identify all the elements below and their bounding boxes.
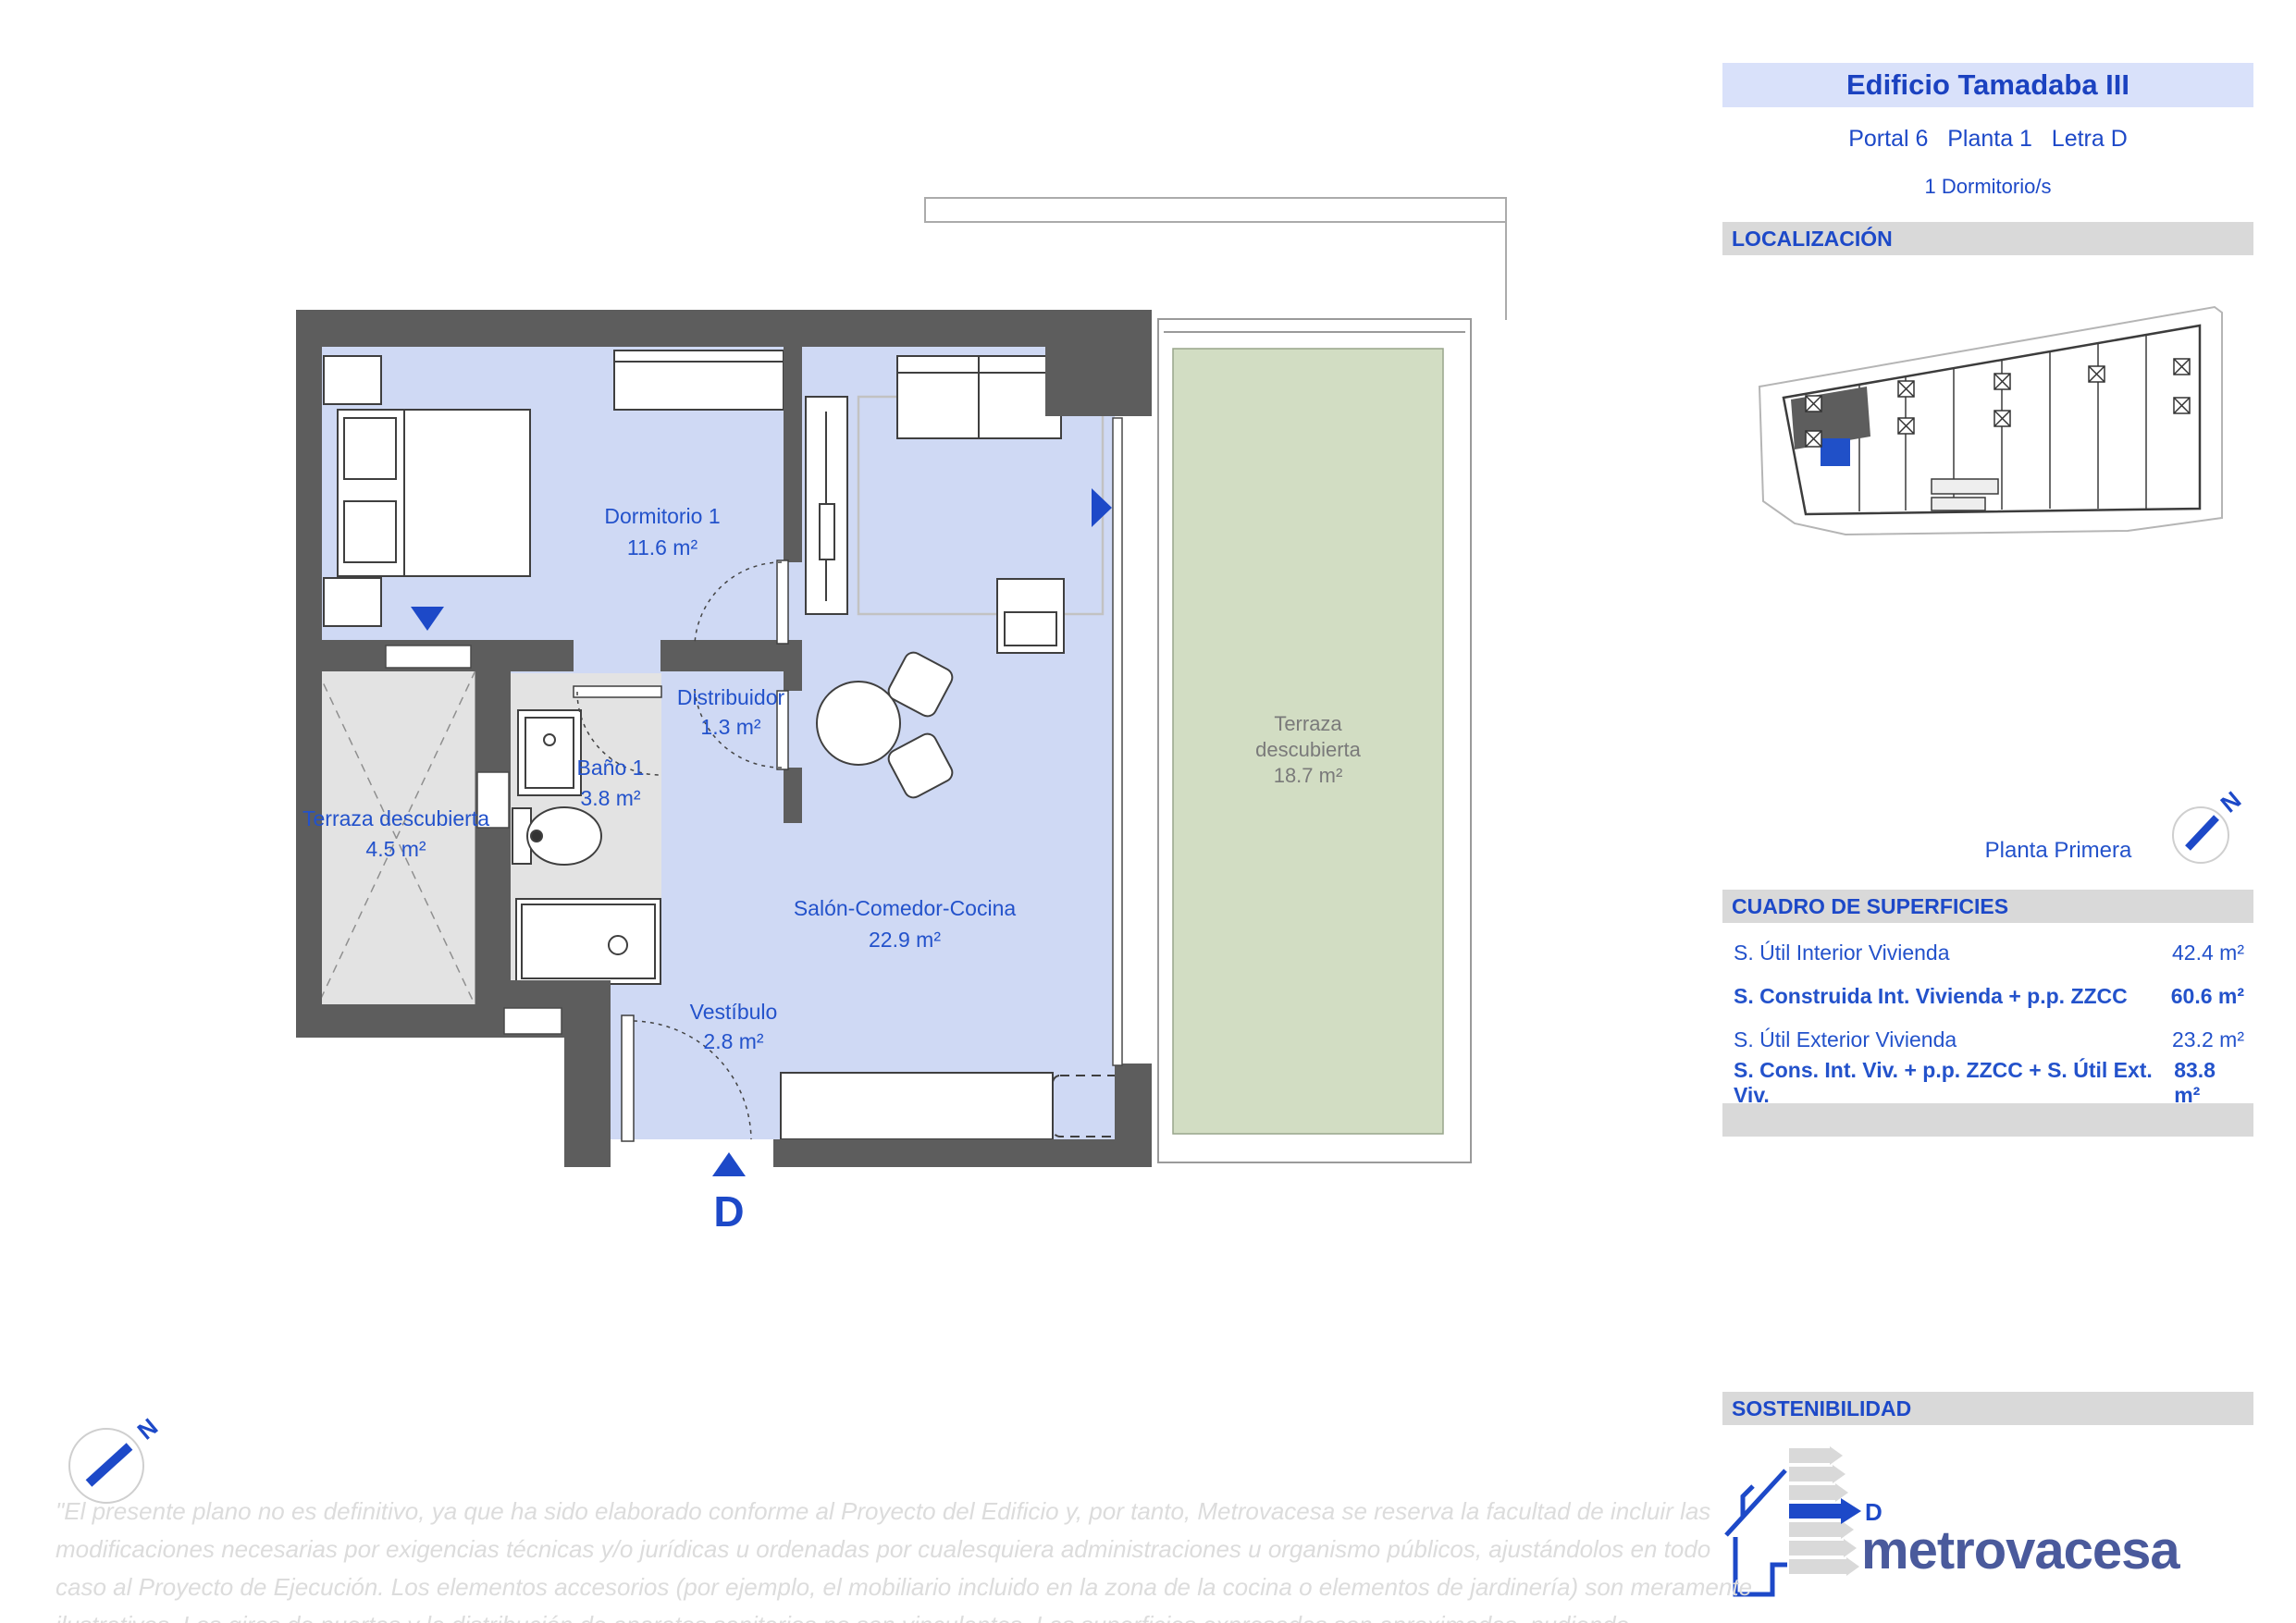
surface-label: S. Útil Interior Vivienda	[1734, 941, 1950, 965]
surface-value: 42.4 m²	[2172, 941, 2244, 965]
surface-label: S. Útil Exterior Vivienda	[1734, 1027, 1957, 1052]
floor-plan-sheet: D Dormitorio 1 11.6 m² Distribuidor 1.3 …	[0, 0, 2296, 1623]
panel-divider-bar	[1722, 1103, 2253, 1137]
room-terraza-ext-area: 18.7 m²	[1274, 764, 1343, 787]
room-bano-area: 3.8 m²	[580, 786, 641, 810]
room-vestibulo-area: 2.8 m²	[703, 1029, 764, 1053]
surface-value: 83.8 m²	[2174, 1058, 2244, 1108]
surface-label: S. Cons. Int. Viv. + p.p. ZZCC + S. Útil…	[1734, 1058, 2174, 1108]
section-superficies: CUADRO DE SUPERFICIES	[1722, 890, 2253, 923]
room-salon-name: Salón-Comedor-Cocina	[794, 896, 1017, 920]
surface-row: S. Útil Interior Vivienda 42.4 m²	[1734, 936, 2244, 969]
section-localizacion: LOCALIZACIÓN	[1722, 222, 2253, 255]
section-sostenibilidad: SOSTENIBILIDAD	[1722, 1392, 2253, 1425]
compass-panel-letter: N	[2216, 786, 2247, 818]
floor-name: Planta Primera	[1924, 837, 2192, 865]
surface-value: 60.6 m²	[2171, 984, 2244, 1009]
surface-row: S. Cons. Int. Viv. + p.p. ZZCC + S. Útil…	[1734, 1066, 2244, 1100]
entrance-letter: D	[713, 1187, 744, 1236]
surface-value: 23.2 m²	[2172, 1027, 2244, 1052]
legal-disclaimer: "El presente plano no es definitivo, ya …	[56, 1493, 1754, 1623]
building-title: Edificio Tamadaba III	[1722, 63, 2253, 107]
surface-row: S. Construida Int. Vivienda + p.p. ZZCC …	[1734, 979, 2244, 1013]
room-distribuidor-name: Distribuidor	[677, 685, 785, 709]
compass-plan-letter: N	[132, 1413, 164, 1445]
bedrooms-count: 1 Dormitorio/s	[1722, 174, 2253, 200]
room-terraza-ext-line1: Terraza	[1274, 712, 1342, 735]
surface-row: S. Útil Exterior Vivienda 23.2 m²	[1734, 1023, 2244, 1056]
location-map	[1759, 307, 2222, 535]
compass-plan-icon: N	[69, 1413, 163, 1503]
room-terraza-int-area: 4.5 m²	[365, 837, 426, 861]
entrance-arrow-icon	[712, 1152, 746, 1176]
unit-location-line: Portal 6 Planta 1 Letra D	[1722, 124, 2253, 154]
room-terraza-int-name: Terraza descubierta	[302, 806, 489, 830]
room-salon-area: 22.9 m²	[869, 928, 941, 952]
room-dormitorio-name: Dormitorio 1	[604, 504, 720, 528]
room-terraza-ext-line2: descubierta	[1255, 738, 1362, 761]
map-unit-highlight	[1821, 438, 1850, 466]
room-bano-name: Baño 1	[577, 756, 645, 780]
surface-label: S. Construida Int. Vivienda + p.p. ZZCC	[1734, 984, 2128, 1009]
room-vestibulo-name: Vestíbulo	[690, 1000, 778, 1024]
projection-outline	[925, 198, 1506, 320]
room-distribuidor-area: 1.3 m²	[700, 715, 761, 739]
room-dormitorio-area: 11.6 m²	[627, 535, 698, 559]
entrance-marker: D	[712, 1152, 746, 1236]
brand-logo: metrovacesa	[1861, 1519, 2250, 1581]
